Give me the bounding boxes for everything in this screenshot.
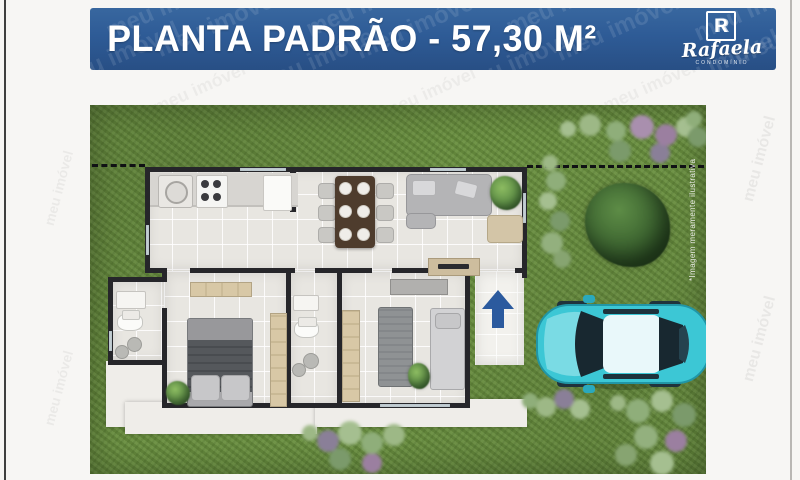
flyer-root: meu imóvelmeu imóvelmeu imóvelmeu imóvel… (0, 0, 800, 480)
sofa-cushion (454, 180, 479, 200)
wardrobe (270, 313, 287, 407)
bathroom-sink (116, 291, 146, 309)
plan-title: PLANTA PADRÃO - 57,30 M² (90, 8, 614, 70)
bed-pillow (191, 375, 220, 401)
page-edge-line-left (4, 0, 6, 480)
dining-table (335, 176, 375, 248)
tv (438, 264, 469, 269)
potted-plant (408, 363, 430, 389)
bush (542, 155, 558, 171)
entrance-arrow-icon (482, 290, 514, 309)
armchair (487, 215, 523, 243)
car-illustration (533, 295, 706, 393)
window (430, 168, 466, 171)
dresser (390, 279, 448, 295)
stove-burner (213, 193, 221, 201)
potted-plant (166, 381, 190, 405)
dining-chair (318, 227, 336, 243)
plate (339, 182, 352, 195)
bush (522, 393, 538, 409)
dining-chair (376, 205, 394, 221)
dining-chair (318, 205, 336, 221)
single-bed (430, 308, 465, 390)
bathroom-2-floor (289, 271, 339, 406)
potted-plant (490, 176, 522, 210)
bed-pillow (435, 313, 461, 329)
dining-chair (376, 227, 394, 243)
sofa-cushion (412, 180, 436, 196)
window (109, 331, 112, 351)
double-bed (187, 318, 253, 407)
shower (290, 351, 320, 379)
stove (196, 175, 228, 208)
stove-burner (201, 193, 209, 201)
window (523, 193, 526, 223)
dining-chair (318, 183, 336, 199)
stove-burner (201, 180, 209, 188)
window (146, 225, 149, 255)
entrance-arrow-stem (492, 308, 504, 328)
window (240, 168, 286, 171)
condominium-logo: R Rafaela CONDOMÍNIO (674, 8, 770, 70)
sofa-chaise (406, 213, 436, 229)
sofa (406, 174, 492, 216)
flower-bush (560, 121, 576, 137)
wardrobe (342, 310, 360, 402)
toilet (294, 320, 319, 338)
wall (315, 268, 372, 273)
refrigerator (263, 175, 292, 211)
boundary-dashed-line-left (92, 164, 145, 167)
plate (339, 228, 352, 241)
plate (357, 205, 370, 218)
plate (339, 205, 352, 218)
page-edge-line-right (790, 0, 792, 480)
shower (113, 335, 143, 361)
logo-subtitle: CONDOMÍNIO (674, 60, 770, 66)
plate (357, 228, 370, 241)
watermark-text: meu imóvel (740, 294, 780, 384)
kitchen-sink (158, 175, 193, 208)
bed-blanket (188, 319, 252, 340)
logo-name: Rafaela (673, 36, 770, 63)
tree (585, 183, 670, 267)
watermark-text: meu imóvel (41, 149, 76, 228)
bed-pillow (221, 375, 250, 401)
wall (190, 268, 295, 273)
disclaimer-text: *Imagem meramente ilustrativa (688, 109, 697, 281)
watermark-text: meu imóvel (41, 349, 76, 428)
bush (610, 395, 626, 411)
headboard-shelf (190, 282, 252, 297)
toilet (117, 313, 143, 331)
dining-chair (376, 183, 394, 199)
shower-fixture (303, 353, 319, 369)
title-banner: meu imóvelmeu imóvelmeu imóvelmeu imóvel… (90, 8, 776, 70)
watermark-text: meu imóvel (740, 114, 780, 204)
bush (302, 425, 318, 441)
shower-fixture (127, 337, 142, 352)
wall (108, 277, 167, 282)
window (380, 404, 450, 407)
wall (145, 167, 527, 172)
plate (357, 182, 370, 195)
stove-burner (213, 180, 221, 188)
tv-rack (428, 258, 480, 276)
bathroom-sink (293, 295, 319, 311)
wall (515, 268, 527, 273)
site-plan-illustration: *Imagem meramente ilustrativa (90, 105, 706, 474)
wall (465, 273, 470, 408)
car-top-view (533, 295, 706, 393)
